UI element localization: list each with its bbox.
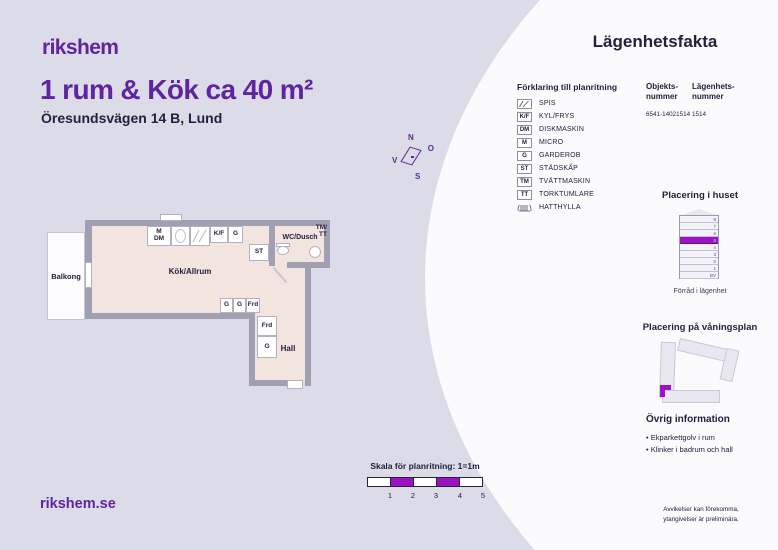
- floor-row: 1: [680, 265, 718, 272]
- storage-caption: Förråd i lägenhet: [630, 288, 770, 295]
- apartment-number-label: Lägenhets-: [692, 82, 735, 92]
- roof-shape: [679, 209, 719, 215]
- legend-symbol: M: [517, 138, 532, 148]
- wardrobe-label: G: [233, 231, 238, 238]
- legend-heading: Förklaring till planritning: [517, 82, 617, 92]
- apartment-title: 1 rum & Kök ca 40 m²: [40, 74, 313, 106]
- apartment-address: Öresundsvägen 14 B, Lund: [41, 110, 222, 126]
- legend-label: HATTHYLLA: [539, 204, 581, 211]
- legend-symbol: TT: [517, 190, 532, 200]
- scale-tick: 3: [431, 491, 441, 500]
- compass-east: O: [428, 144, 434, 153]
- legend-symbol: ST: [517, 164, 532, 174]
- other-info-item: Klinker i badrum och hall: [646, 444, 733, 456]
- floor-plan: Balkong M DM: [45, 212, 345, 396]
- wall: [249, 380, 287, 386]
- website-link[interactable]: rikshem.se: [40, 496, 116, 512]
- floorplate-placement-heading: Placering på våningsplan: [615, 322, 778, 333]
- apartment-number: Lägenhets- nummer 1514: [692, 82, 735, 119]
- storage-box: Frd: [246, 298, 260, 313]
- scale-heading: Skala för planritning: 1=1m: [350, 461, 500, 471]
- legend-symbol: K/F: [517, 112, 532, 122]
- rikshem-logo: rikshem: [42, 36, 118, 60]
- toilet-icon: [277, 246, 289, 255]
- legend-item: SPIS: [517, 97, 594, 110]
- legend-symbol: G: [517, 151, 532, 161]
- fridge-freezer-box: K/F: [210, 226, 228, 243]
- wardrobe-label: G: [224, 302, 229, 309]
- scale-segment: [414, 478, 437, 486]
- object-number-label: nummer: [646, 92, 690, 102]
- window: [160, 214, 182, 221]
- legend-label: STÄDSKÅP: [539, 165, 578, 172]
- building-wing: [662, 390, 720, 403]
- storage-label: Frd: [262, 323, 272, 330]
- legend-item: ST STÄDSKÅP: [517, 162, 594, 175]
- entrance-door: [287, 380, 303, 389]
- legend-label: TVÄTTMASKIN: [539, 178, 590, 185]
- wardrobe-box: G: [228, 226, 243, 243]
- compass-west: V: [392, 156, 397, 165]
- washer-label: TM/: [295, 224, 327, 231]
- building-wing: [677, 338, 729, 362]
- storage-label: Frd: [248, 302, 258, 309]
- facts-heading: Lägenhetsfakta: [545, 32, 765, 52]
- scale-tick: 1: [385, 491, 395, 500]
- compass-north: N: [408, 133, 414, 142]
- apartment-factsheet: rikshem 1 rum & Kök ca 40 m² Öresundsväg…: [0, 0, 778, 550]
- hall-label: Hall: [273, 344, 303, 353]
- scale-segment: [391, 478, 414, 486]
- disclaimer: Avvikelser kan förekomma, ytangivelser ä…: [628, 505, 774, 525]
- floorplate-diagram: [652, 338, 747, 410]
- balcony-door: [85, 262, 92, 288]
- legend-label: KYL/FRYS: [539, 113, 574, 120]
- micro-dishwasher-box: M DM: [147, 226, 171, 246]
- living-room-label: Kök/Allrum: [140, 267, 240, 276]
- stove-box: [190, 226, 210, 246]
- building-elevation-diagram: 8 7 6 5 4 3 2 1 BV: [679, 209, 719, 279]
- wardrobe-label: G: [237, 302, 242, 309]
- wardrobe-label: G: [264, 344, 269, 351]
- scale-tick: 4: [455, 491, 465, 500]
- legend-item: DM DISKMASKIN: [517, 123, 594, 136]
- balcony-area: Balkong: [47, 232, 85, 320]
- cleaning-closet-label: ST: [255, 249, 263, 256]
- legend-symbol: TM: [517, 177, 532, 187]
- legend-item: G GARDEROB: [517, 149, 594, 162]
- legend-label: GARDEROB: [539, 152, 581, 159]
- legend-item: TT TORKTUMLARE: [517, 188, 594, 201]
- compass-icon: N O S V: [392, 135, 434, 181]
- sink-box: [171, 226, 190, 246]
- fridge-freezer-label: K/F: [214, 231, 224, 238]
- apartment-number-label: nummer: [692, 92, 735, 102]
- scale-segment: [460, 478, 482, 486]
- legend-symbol: DM: [517, 125, 532, 135]
- floor-row: 4: [680, 244, 718, 251]
- dishwasher-label: DM: [154, 236, 164, 243]
- floor-row-highlighted: 5: [680, 237, 718, 244]
- apartment-location-marker: [660, 390, 665, 397]
- disclaimer-line: ytangivelser är preliminära.: [628, 515, 774, 525]
- apartment-number-value: 1514: [692, 111, 735, 119]
- legend-label: MICRO: [539, 139, 563, 146]
- compass-center-dot: [411, 156, 414, 158]
- wardrobe-box: G: [220, 298, 233, 313]
- cleaning-closet-box: ST: [249, 244, 269, 261]
- other-info-item: Ekparkettgolv i rum: [646, 432, 733, 444]
- wall: [85, 313, 255, 319]
- spis-icon: [191, 227, 209, 245]
- legend-item: M MICRO: [517, 136, 594, 149]
- scale-segment: [368, 478, 391, 486]
- sink-icon: [175, 229, 186, 243]
- balcony-label: Balkong: [51, 272, 81, 281]
- wall: [305, 268, 311, 386]
- object-number-label: Objekts-: [646, 82, 690, 92]
- scale-tick: 5: [478, 491, 488, 500]
- plan-legend: SPIS K/F KYL/FRYS DM DISKMASKIN M MICRO …: [517, 97, 594, 214]
- floor-row: 6: [680, 230, 718, 237]
- wall: [269, 220, 275, 266]
- legend-item: K/F KYL/FRYS: [517, 110, 594, 123]
- other-info-list: Ekparkettgolv i rum Klinker i badrum och…: [646, 432, 733, 457]
- hatthylla-icon: [517, 203, 532, 213]
- shower-drain-icon: [309, 246, 321, 258]
- floor-row: BV: [680, 272, 718, 279]
- storage-box: Frd: [257, 316, 277, 336]
- floor-row: 3: [680, 251, 718, 258]
- legend-label: SPIS: [539, 100, 556, 107]
- compass-south: S: [415, 172, 420, 181]
- floor-stack: 8 7 6 5 4 3 2 1 BV: [679, 215, 719, 279]
- scale-segment: [437, 478, 460, 486]
- object-number-value: 6541-14021514: [646, 111, 690, 119]
- wardrobe-box: G: [233, 298, 246, 313]
- house-placement-heading: Placering i huset: [630, 190, 770, 201]
- legend-item: TM TVÄTTMASKIN: [517, 175, 594, 188]
- scale-bar: [367, 477, 483, 487]
- wc-room-label: WC/Dusch: [273, 234, 327, 241]
- floor-row: 7: [680, 223, 718, 230]
- object-number: Objekts- nummer 6541-14021514: [646, 82, 690, 119]
- other-info-heading: Övrig information: [646, 414, 730, 425]
- wall: [85, 220, 92, 262]
- floor-row: 2: [680, 258, 718, 265]
- floor-row: 8: [680, 216, 718, 223]
- legend-item: HATTHYLLA: [517, 201, 594, 214]
- legend-label: DISKMASKIN: [539, 126, 584, 133]
- scale-tick: 2: [408, 491, 418, 500]
- disclaimer-line: Avvikelser kan förekomma,: [628, 505, 774, 515]
- legend-label: TORKTUMLARE: [539, 191, 594, 198]
- spis-icon: [517, 99, 532, 109]
- wall: [249, 313, 255, 380]
